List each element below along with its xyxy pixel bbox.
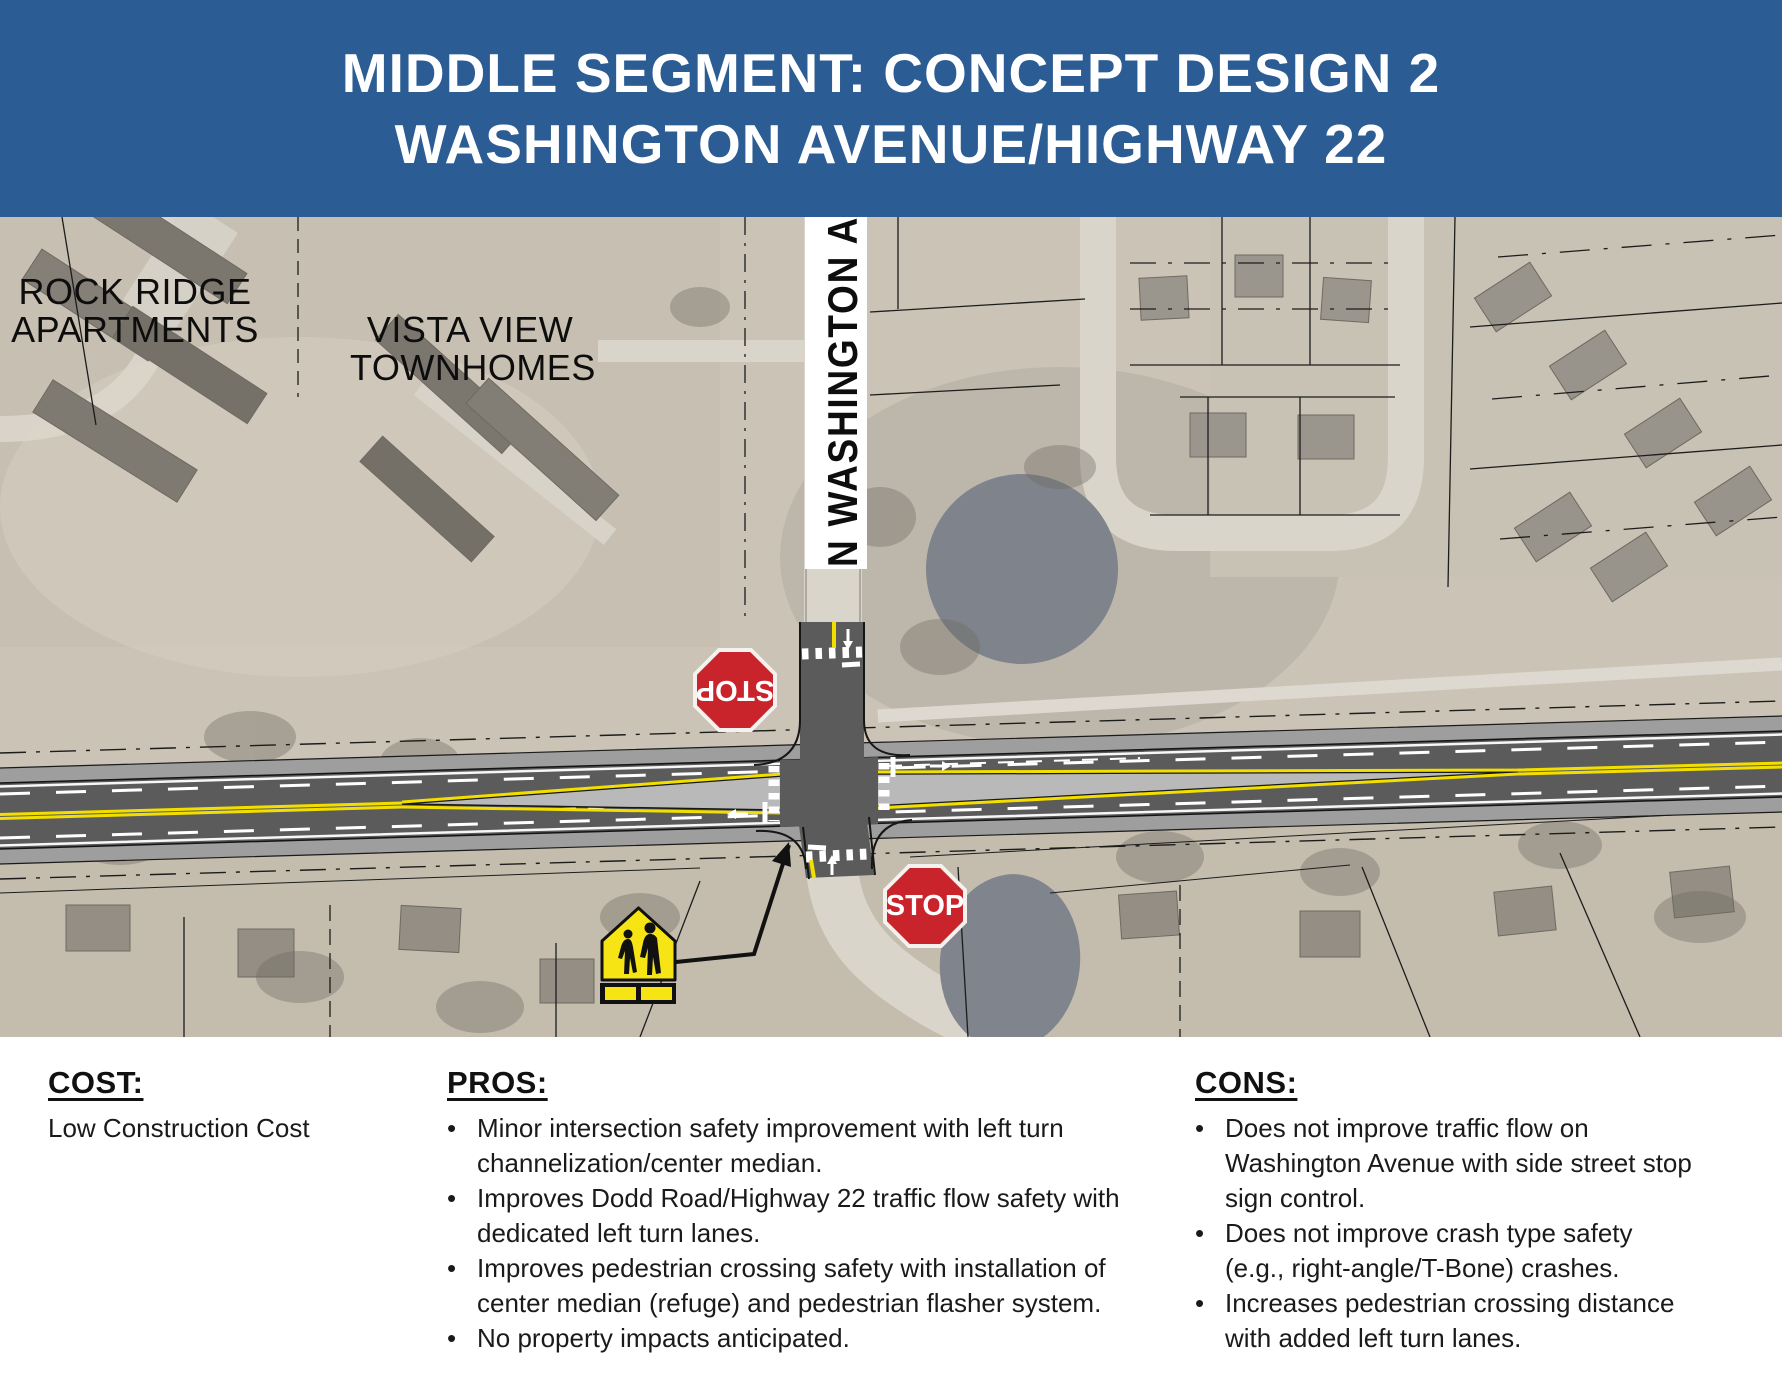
pros-item: No property impacts anticipated. [447, 1321, 1137, 1356]
pros-heading: PROS: [447, 1065, 1137, 1101]
pros-section: PROS: Minor intersection safety improvem… [447, 1065, 1137, 1356]
cost-section: COST: Low Construction Cost [48, 1065, 388, 1146]
cons-list: Does not improve traffic flow on Washing… [1195, 1111, 1695, 1356]
street-name-vertical-label: N WASHINGTON A [819, 217, 867, 567]
cons-heading: CONS: [1195, 1065, 1695, 1101]
pros-item: Improves Dodd Road/Highway 22 traffic fl… [447, 1181, 1137, 1251]
label-vista-view-townhomes: VISTA VIEW TOWNHOMES [350, 311, 590, 387]
street-name-banner: N WASHINGTON A [805, 217, 867, 569]
cons-section: CONS: Does not improve traffic flow on W… [1195, 1065, 1695, 1356]
pros-item: Minor intersection safety improvement wi… [447, 1111, 1137, 1181]
label-rock-ridge-apartments: ROCK RIDGE APARTMENTS [10, 273, 260, 349]
cost-text: Low Construction Cost [48, 1111, 388, 1146]
cons-item: Does not improve crash type safety (e.g.… [1195, 1216, 1695, 1286]
cost-heading: COST: [48, 1065, 388, 1101]
summary-panel: COST: Low Construction Cost $ PROS: Mino… [0, 1037, 1782, 1377]
concept-design-slide: MIDDLE SEGMENT: CONCEPT DESIGN 2 WASHING… [0, 0, 1782, 1377]
page-title-line2: WASHINGTON AVENUE/HIGHWAY 22 [395, 114, 1388, 175]
cons-item: Increases pedestrian crossing distance w… [1195, 1286, 1695, 1356]
pros-item: Improves pedestrian crossing safety with… [447, 1251, 1137, 1321]
aerial-concept-map: ROCK RIDGE APARTMENTS VISTA VIEW TOWNHOM… [0, 217, 1782, 1037]
pros-list: Minor intersection safety improvement wi… [447, 1111, 1137, 1356]
title-banner: MIDDLE SEGMENT: CONCEPT DESIGN 2 WASHING… [0, 0, 1782, 217]
cons-item: Does not improve traffic flow on Washing… [1195, 1111, 1695, 1216]
page-title-line1: MIDDLE SEGMENT: CONCEPT DESIGN 2 [342, 43, 1440, 104]
